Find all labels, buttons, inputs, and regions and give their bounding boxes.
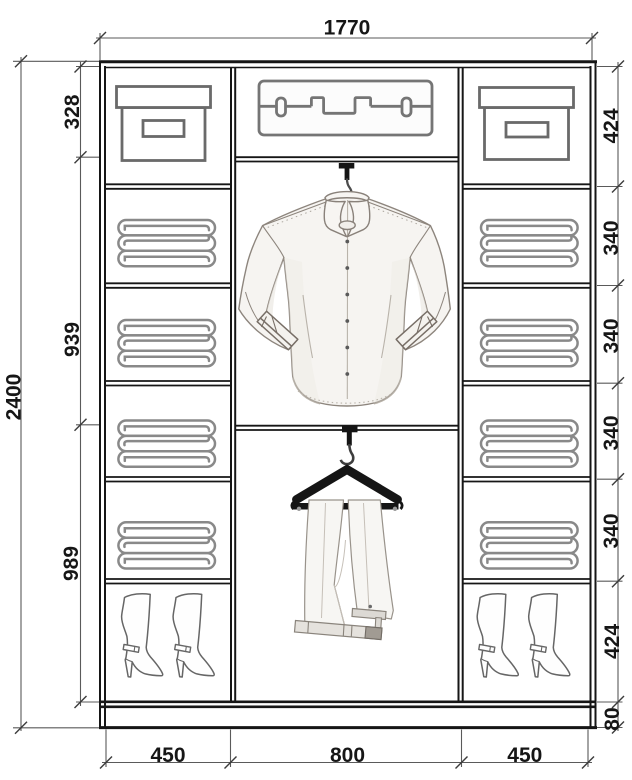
svg-text:328: 328 [61, 94, 84, 129]
svg-text:80: 80 [601, 707, 624, 730]
svg-text:450: 450 [150, 744, 185, 767]
svg-text:800: 800 [330, 744, 365, 767]
svg-text:340: 340 [600, 220, 623, 255]
svg-text:340: 340 [600, 415, 623, 450]
svg-text:989: 989 [60, 546, 83, 581]
svg-text:424: 424 [600, 108, 623, 143]
svg-text:2400: 2400 [3, 374, 26, 421]
svg-text:450: 450 [507, 744, 542, 767]
svg-text:340: 340 [600, 318, 623, 353]
svg-text:939: 939 [61, 322, 84, 357]
svg-text:424: 424 [601, 624, 624, 659]
svg-text:340: 340 [600, 513, 623, 548]
svg-text:1770: 1770 [324, 17, 371, 40]
